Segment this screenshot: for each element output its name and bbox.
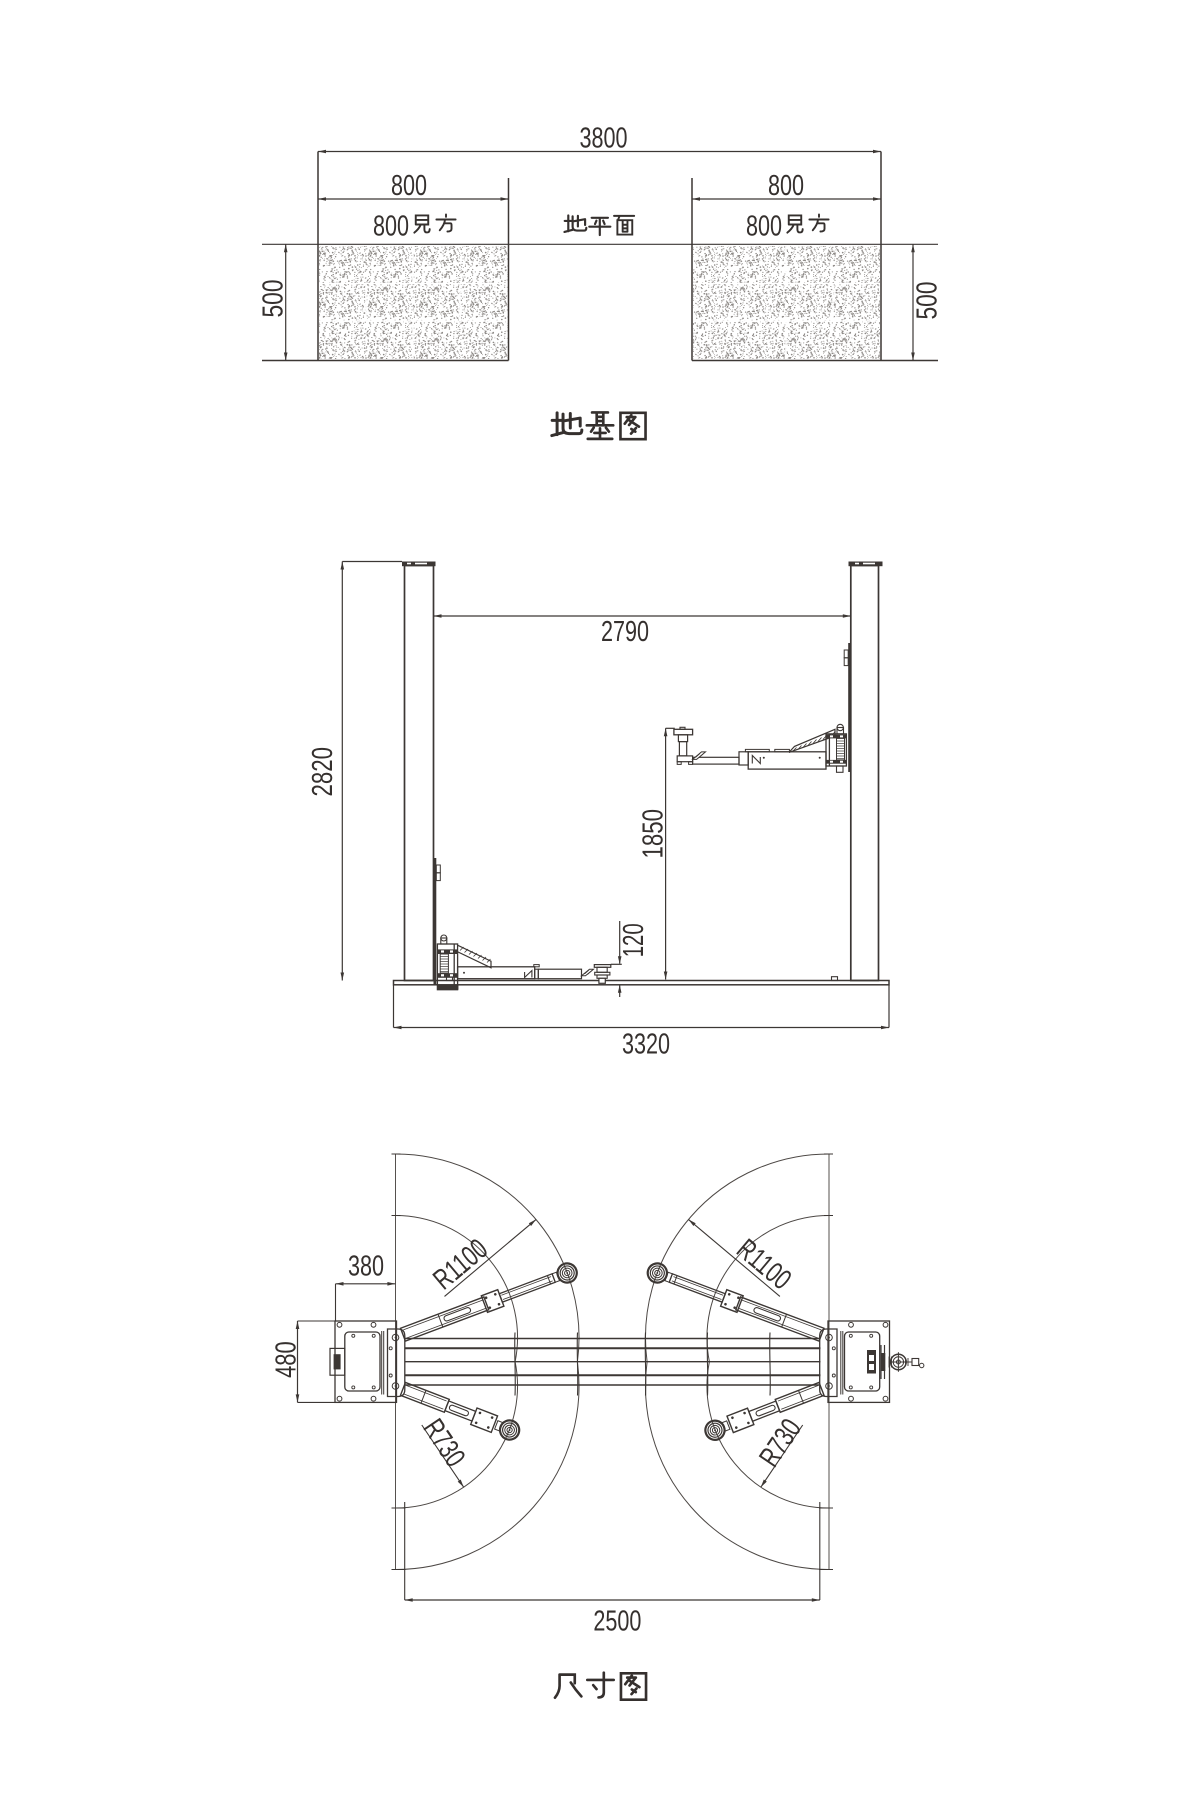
svg-text:800: 800 <box>391 170 427 202</box>
svg-text:R730: R730 <box>753 1413 807 1472</box>
svg-text:480: 480 <box>271 1341 303 1378</box>
svg-text:800: 800 <box>373 210 409 242</box>
svg-text:R1100: R1100 <box>428 1233 495 1296</box>
svg-text:500: 500 <box>912 282 944 320</box>
svg-text:2790: 2790 <box>601 616 649 648</box>
svg-text:3320: 3320 <box>622 1028 670 1060</box>
svg-text:800: 800 <box>768 170 804 202</box>
svg-text:380: 380 <box>348 1250 384 1282</box>
svg-text:120: 120 <box>618 923 650 957</box>
svg-text:3800: 3800 <box>580 123 628 155</box>
svg-text:1850: 1850 <box>637 809 669 859</box>
svg-text:R730: R730 <box>417 1413 471 1472</box>
svg-text:R1100: R1100 <box>730 1233 797 1296</box>
svg-text:500: 500 <box>257 280 289 318</box>
svg-text:800: 800 <box>746 210 782 242</box>
svg-text:2820: 2820 <box>307 747 339 797</box>
svg-text:2500: 2500 <box>593 1605 641 1637</box>
